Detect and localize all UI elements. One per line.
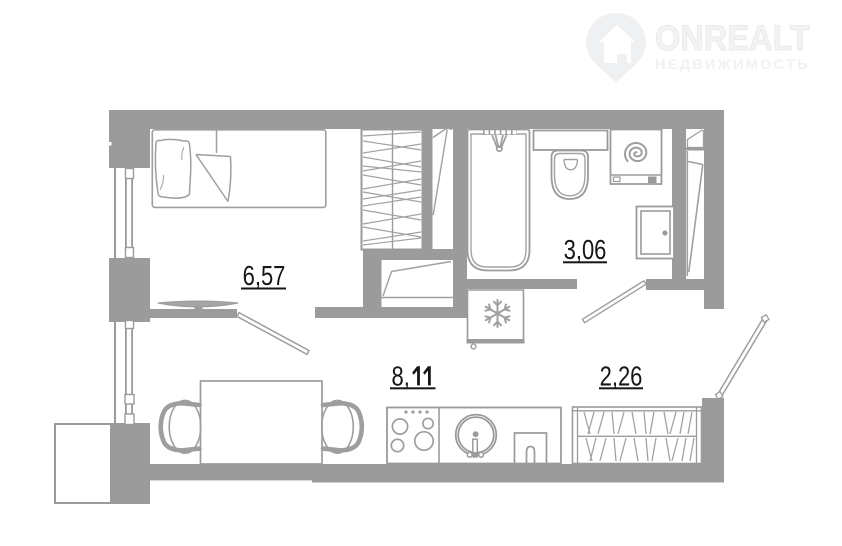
svg-text:ONREALT: ONREALT bbox=[655, 19, 810, 58]
svg-text:3,06: 3,06 bbox=[564, 235, 607, 266]
svg-text:6,57: 6,57 bbox=[243, 261, 286, 292]
svg-text:НЕДВИЖИМОСТЬ: НЕДВИЖИМОСТЬ bbox=[655, 57, 810, 73]
